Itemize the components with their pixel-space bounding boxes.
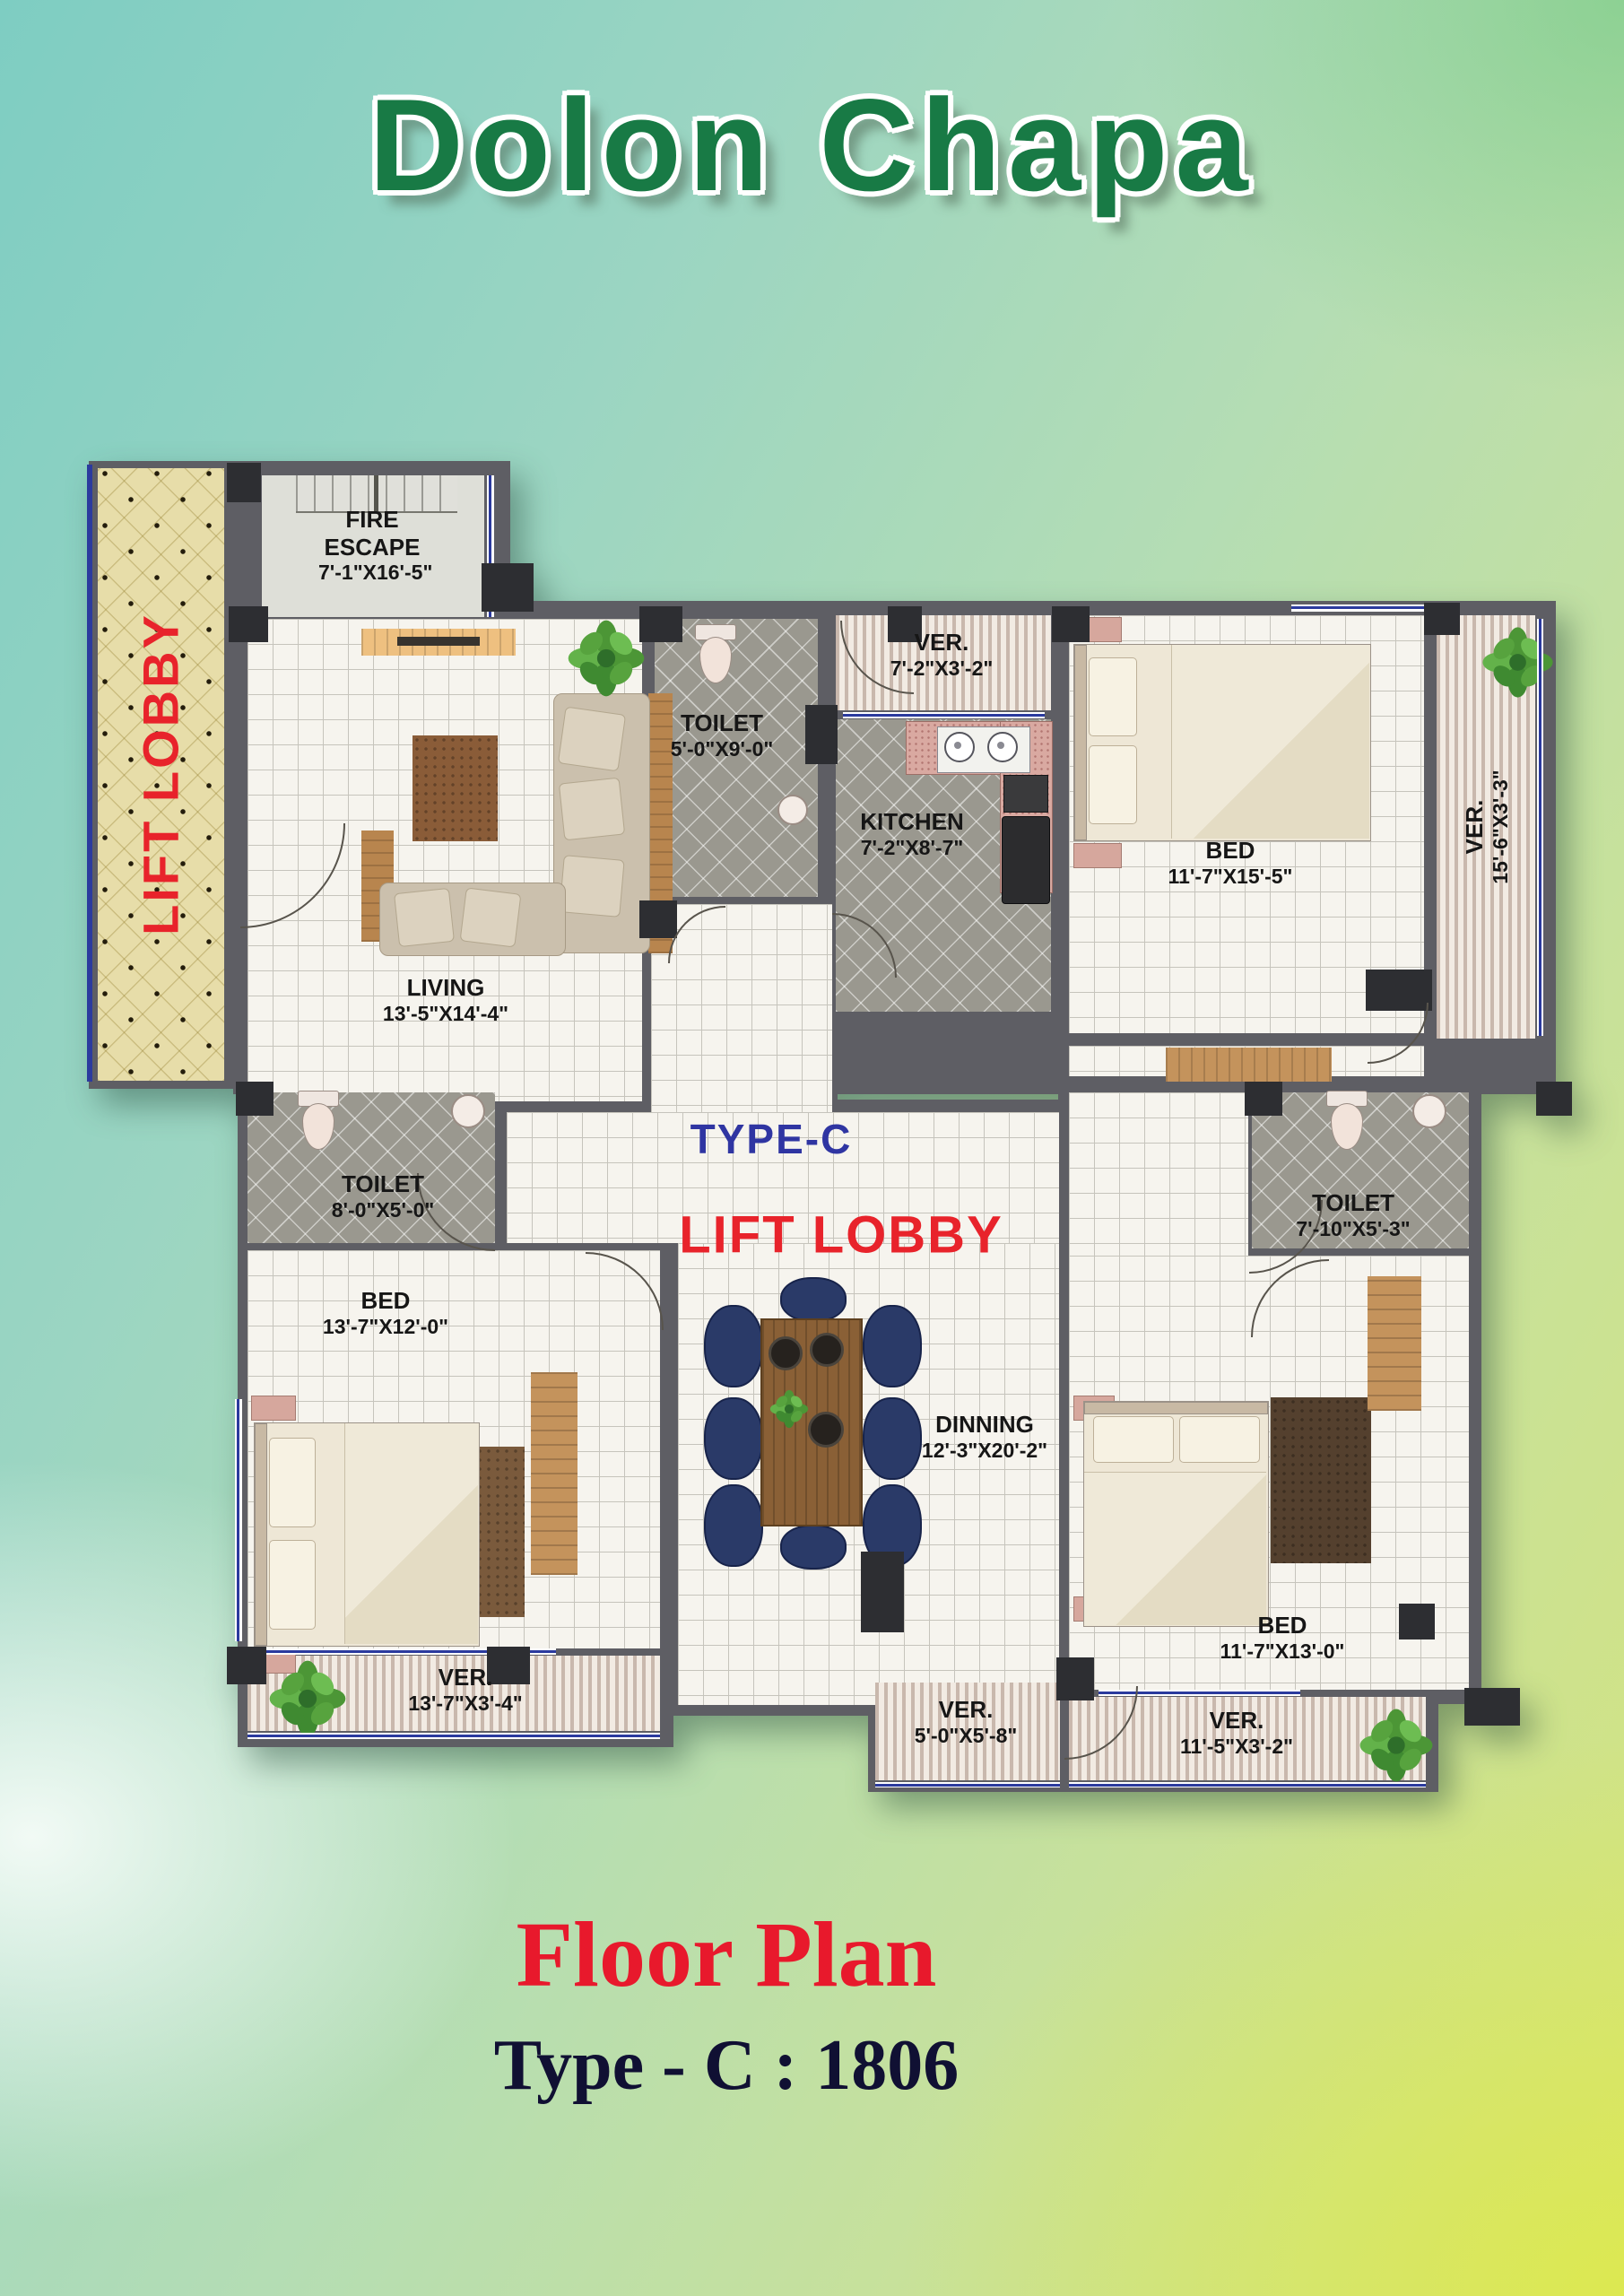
column [227,1647,266,1684]
room-name: BED [1220,1612,1345,1639]
window [1069,1782,1426,1787]
headboard [255,1423,267,1646]
room-label-ver-bottom-right: VER. 11'-5"X3'-2" [1180,1707,1293,1759]
plant-icon [1480,624,1556,700]
column [482,563,534,612]
column [1536,1082,1572,1116]
column [639,606,682,642]
dresser [1166,1048,1332,1082]
room-label-bed-left: BED 13'-7"X12'-0" [323,1287,448,1339]
sofa [553,693,650,953]
column [1399,1604,1435,1639]
column [1052,606,1090,642]
column [1245,1082,1282,1116]
room-name: DINNING [922,1411,1047,1439]
room-name: FIRE ESCAPE [318,506,426,561]
lift-lobby-label: LIFT LOBBY [679,1205,1003,1265]
column [1464,1688,1520,1726]
room-label-toilet-left: TOILET 8'-0"X5'-0" [332,1170,435,1222]
dining-chair [780,1525,847,1570]
column [639,900,677,938]
room-dim: 5'-0"X9'-0" [671,737,774,761]
window [235,1399,242,1641]
room-label-ver-bottom-left: VER. 13'-7"X3'-4" [408,1664,522,1716]
sofa-pillow [394,888,455,947]
pillow [269,1540,316,1630]
bed3-entry [1069,1092,1248,1256]
pillow [1089,745,1137,824]
room-name: TOILET [671,709,774,737]
basin-icon [451,1094,485,1128]
toilet-icon [1324,1091,1369,1155]
window [843,712,1045,718]
toilet-icon [296,1091,341,1155]
room-label-fire-escape: FIRE ESCAPE 7'-1"X16'-5" [318,506,426,585]
side-table [1073,843,1122,868]
room-dim: 7'-1"X16'-5" [318,561,426,585]
room-dim: 8'-0"X5'-0" [332,1198,435,1222]
window [875,1782,1060,1787]
room-label-ver-top: VER. 7'-2"X3'-2" [890,629,994,681]
sofa [379,883,566,956]
room-dim: 7'-2"X8'-7" [860,836,964,860]
page-title: Dolon Chapa [369,70,1255,221]
bed [1083,1401,1269,1627]
quilt [344,1423,478,1644]
tv [397,637,480,646]
room-name: VER. [915,1696,1018,1724]
room-dim: 15'-6"X3'-3" [1489,770,1513,883]
column [229,606,268,642]
living-rug [413,735,498,841]
room-label-ver-bottom-center: VER. 5'-0"X5'-8" [915,1696,1018,1748]
dining-chair [704,1397,763,1480]
room-label-ver-right: VER. 15'-6"X3'-3" [1461,770,1513,883]
poster-page: Dolon Chapa [0,0,1624,2296]
room-name: BED [323,1287,448,1315]
plant-icon [1357,1706,1436,1785]
window [1291,604,1424,612]
column [861,1552,904,1632]
room-dim: 12'-3"X20'-2" [922,1439,1047,1463]
bedside-rug [1271,1397,1371,1563]
column [236,1082,274,1116]
room-dim: 11'-7"X13'-0" [1220,1639,1345,1664]
dining-chair [863,1305,922,1387]
sofa-pillow [559,778,625,841]
sofa-pillow [460,887,522,947]
burner-icon [987,732,1018,762]
room-label-toilet-top: TOILET 5'-0"X9'-0" [671,709,774,761]
sink-icon [1003,775,1048,813]
headboard [1084,1402,1268,1414]
headboard [1074,645,1087,840]
room-name: VER. [890,629,994,657]
dining-chair [863,1397,922,1480]
pillow [269,1438,316,1527]
basin-icon [1412,1094,1446,1128]
bed [1073,644,1371,841]
window [87,465,92,1082]
room-label-bed-bottom-right: BED 11'-7"X13'-0" [1220,1612,1345,1664]
quilt [1084,1472,1266,1625]
sofa-pillow [558,707,626,772]
room-dim: 13'-7"X3'-4" [408,1692,522,1716]
quilt [1171,645,1369,839]
room-dim: 13'-5"X14'-4" [383,1002,508,1026]
type-label: TYPE-C [690,1115,853,1163]
dining-chair [780,1277,847,1322]
room-dim: 13'-7"X12'-0" [323,1315,448,1339]
room-name: BED [1168,837,1293,865]
wardrobe [531,1372,578,1575]
plant-icon [769,1388,810,1430]
room-label-living: LIVING 13'-5"X14'-4" [383,974,508,1026]
room-label-kitchen: KITCHEN 7'-2"X8'-7" [860,808,964,860]
basin-icon [777,795,808,825]
window [248,1733,660,1739]
wardrobe [1368,1276,1421,1411]
side-table [251,1396,296,1421]
room-dim: 5'-0"X5'-8" [915,1724,1018,1748]
room-name: VER. [408,1664,522,1692]
window [1537,619,1543,1036]
room-name: LIVING [383,974,508,1002]
room-name: VER. [1461,770,1489,883]
plant-icon [565,617,647,700]
plate-icon [769,1336,803,1370]
plant-icon [266,1657,349,1740]
plate-icon [808,1412,844,1448]
room-dim: 7'-2"X3'-2" [890,657,994,681]
room-label-bed-top-right: BED 11'-7"X15'-5" [1168,837,1293,889]
dining-chair [704,1305,763,1387]
dining-chair [704,1484,763,1567]
room-dim: 7'-10"X5'-3" [1296,1217,1410,1241]
footer-subtitle: Type - C : 1806 [494,2025,959,2107]
room-name: VER. [1180,1707,1293,1735]
bed [254,1422,480,1647]
room-dim: 11'-7"X15'-5" [1168,865,1293,889]
burner-icon [944,732,975,762]
column [805,705,838,764]
pillow [1093,1416,1174,1463]
room-label-toilet-right: TOILET 7'-10"X5'-3" [1296,1189,1410,1241]
pillow [1089,657,1137,736]
column [1424,603,1460,635]
room-label-dining: DINNING 12'-3"X20'-2" [922,1411,1047,1463]
room-dim: 11'-5"X3'-2" [1180,1735,1293,1759]
column [227,463,261,502]
side-lift-lobby-label: LIFT LOBBY [132,613,190,935]
pillow [1179,1416,1260,1463]
toilet-icon [693,624,738,689]
fridge-icon [1002,816,1050,904]
sofa-pillow [559,855,624,918]
room-name: KITCHEN [860,808,964,836]
plate-icon [810,1333,844,1367]
footer-title: Floor Plan [517,1901,937,2008]
floor-plan: FIRE ESCAPE 7'-1"X16'-5" TOILET 5'-0"X9'… [94,465,1572,1810]
room-name: TOILET [332,1170,435,1198]
room-name: TOILET [1296,1189,1410,1217]
